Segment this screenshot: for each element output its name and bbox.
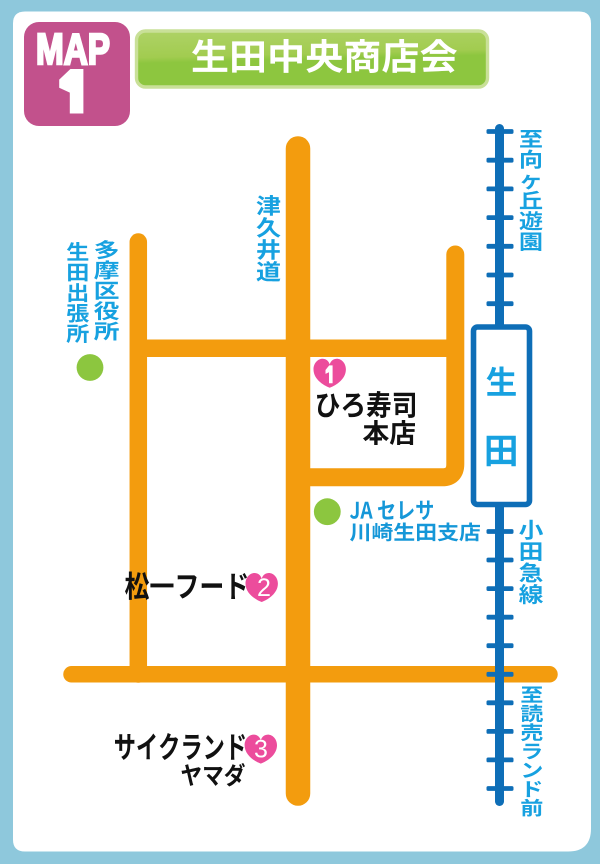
svg-text:3: 3 bbox=[254, 736, 268, 764]
svg-text:MAP: MAP bbox=[36, 25, 110, 74]
svg-text:2: 2 bbox=[257, 574, 271, 602]
